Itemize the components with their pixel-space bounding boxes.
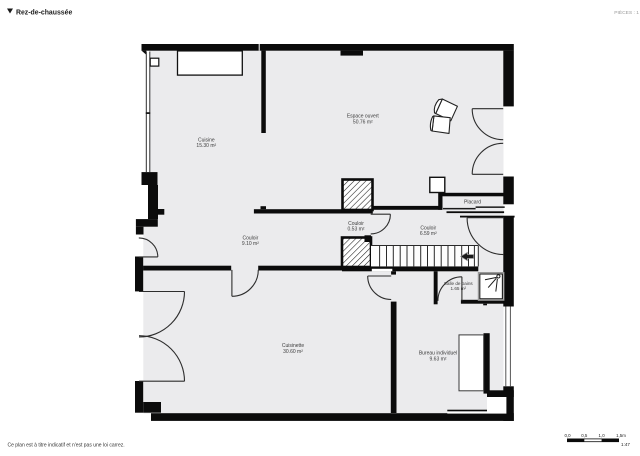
svg-text:0,0: 0,0 [564,433,571,438]
svg-text:Ce plan est à titre indicatif: Ce plan est à titre indicatif et n'est p… [8,443,125,449]
svg-text:Placard: Placard [464,199,481,205]
svg-text:6.59 m²: 6.59 m² [420,231,437,237]
svg-text:9.63 m²: 9.63 m² [430,356,447,362]
svg-text:1,0: 1,0 [599,433,606,438]
svg-text:50.76 m²: 50.76 m² [353,120,373,126]
svg-text:Rez-de-chaussée: Rez-de-chaussée [16,10,72,17]
svg-text:15.30 m²: 15.30 m² [196,143,216,149]
svg-text:30.60 m²: 30.60 m² [283,349,303,355]
svg-text:PIÈCES : 1: PIÈCES : 1 [614,9,639,16]
svg-text:1,5m: 1,5m [616,433,626,438]
svg-text:1:47: 1:47 [621,442,630,447]
svg-text:0.53 m²: 0.53 m² [348,227,365,233]
svg-text:0,5: 0,5 [581,433,588,438]
svg-text:9.10 m²: 9.10 m² [242,241,259,247]
svg-text:1.65 m²: 1.65 m² [451,286,467,291]
